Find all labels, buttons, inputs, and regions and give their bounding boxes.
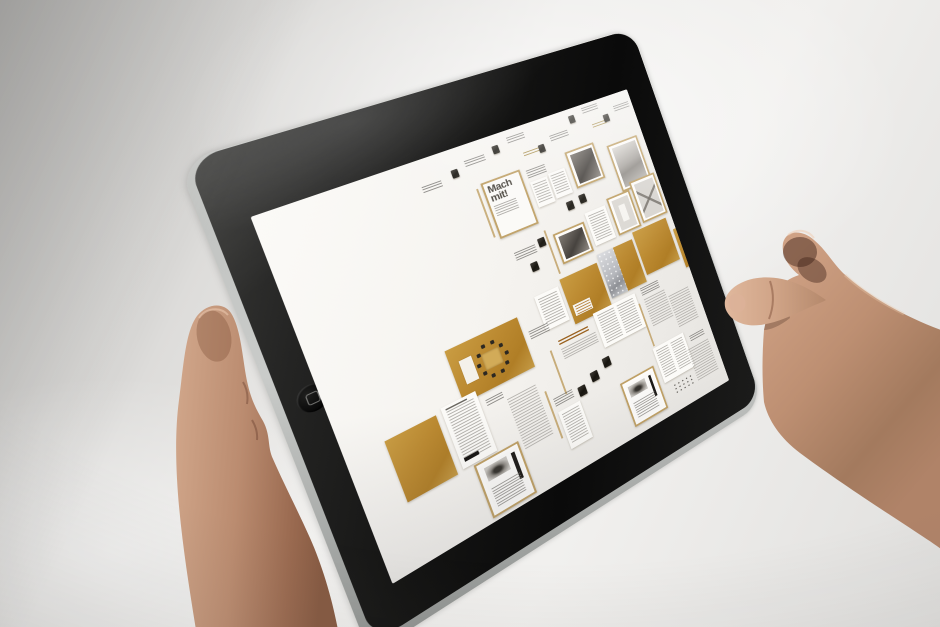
flatplan-heading	[558, 324, 599, 361]
flatplan-hlines	[523, 147, 540, 157]
flatplan-framed-dark	[553, 222, 594, 265]
flatplan-thumb	[537, 237, 547, 248]
flatplan-caption	[422, 180, 444, 193]
flatplan-textpage	[558, 401, 593, 450]
flatplan-caption	[485, 392, 504, 407]
flatplan-thumb	[578, 193, 587, 204]
flatplan-thumb	[566, 200, 575, 211]
flatplan-thumb	[538, 144, 547, 154]
flatplan-caption	[506, 132, 525, 144]
flatplan-thumb	[602, 356, 612, 369]
flatplan-framed-dark	[564, 142, 605, 188]
flatplan-caption	[689, 329, 705, 342]
flatplan-caption	[514, 244, 538, 261]
flatplan-thumb	[530, 261, 540, 272]
flatplan-caption	[464, 154, 486, 167]
flatplan-thumb	[491, 145, 500, 155]
flatplan-thumb	[577, 384, 588, 397]
flatplan-cover: Mach mit!	[480, 169, 538, 239]
flatplan-orange-table	[444, 317, 535, 403]
flatplan-textcol	[668, 286, 699, 328]
flatplan-thumb	[602, 113, 610, 122]
flatplan-thumb	[568, 115, 576, 124]
flatplan-caption	[581, 103, 599, 114]
flatplan-caption	[528, 323, 550, 340]
flatplan-thumb	[450, 169, 459, 179]
flatplan-caption	[613, 101, 630, 112]
photo-stage: Mach mit!	[0, 0, 940, 627]
flatplan-thumb	[590, 370, 600, 383]
flatplan-caption	[549, 130, 569, 142]
